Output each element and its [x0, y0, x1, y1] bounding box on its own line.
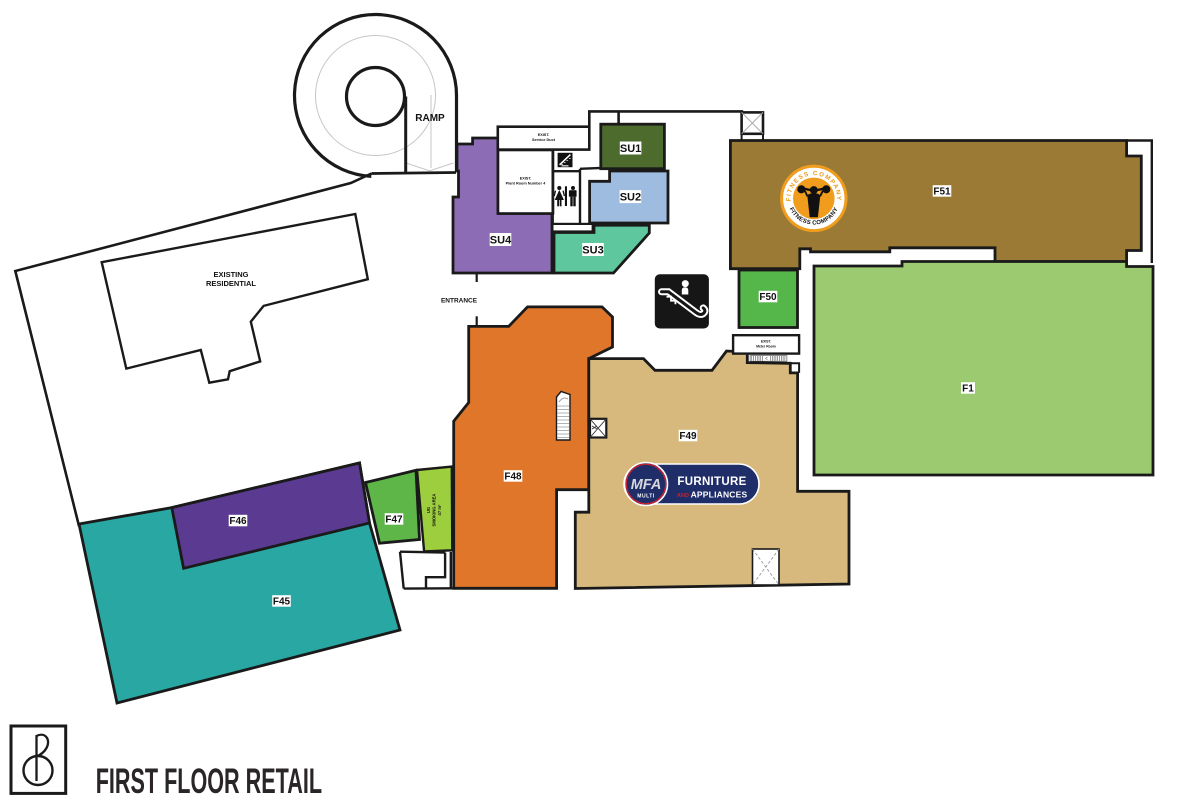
svg-text:FIRST FLOOR RETAIL: FIRST FLOOR RETAIL: [96, 763, 322, 800]
svg-text:EXIST.: EXIST.: [538, 133, 550, 137]
svg-text:F50: F50: [759, 292, 777, 303]
svg-text:MFA: MFA: [631, 477, 662, 493]
svg-text:MULTI: MULTI: [637, 494, 655, 500]
svg-text:SMOKING AREA: SMOKING AREA: [432, 494, 437, 527]
svg-text:SU2: SU2: [620, 192, 641, 204]
svg-text:F48: F48: [504, 472, 522, 483]
svg-text:F46: F46: [229, 516, 247, 527]
svg-text:Plant Room Number 4: Plant Room Number 4: [506, 182, 547, 186]
svg-text:EXISTING: EXISTING: [213, 270, 248, 279]
svg-text:RESIDENTIAL: RESIDENTIAL: [206, 279, 256, 288]
svg-text:UG: UG: [426, 507, 431, 513]
svg-text:ENTRANCE: ENTRANCE: [441, 298, 478, 305]
svg-text:APPLIANCES: APPLIANCES: [691, 490, 748, 500]
svg-text:SU1: SU1: [620, 143, 641, 155]
svg-text:F47: F47: [385, 515, 403, 526]
svg-text:F49: F49: [679, 431, 697, 442]
svg-text:Service Duct: Service Duct: [532, 138, 556, 142]
svg-text:EXIST.: EXIST.: [761, 340, 772, 344]
svg-text:FURNITURE: FURNITURE: [677, 476, 746, 488]
svg-text:EXIST.: EXIST.: [520, 177, 532, 181]
svg-text:RAMP: RAMP: [415, 113, 445, 124]
svg-text:SU4: SU4: [490, 235, 512, 247]
svg-text:F45: F45: [273, 597, 291, 608]
svg-text:SU3: SU3: [582, 245, 603, 257]
svg-text:F1: F1: [962, 384, 974, 395]
svg-text:AND: AND: [677, 493, 689, 499]
svg-text:47 m²: 47 m²: [437, 504, 442, 516]
svg-text:Meter Room: Meter Room: [756, 345, 776, 349]
svg-text:F51: F51: [933, 187, 951, 198]
